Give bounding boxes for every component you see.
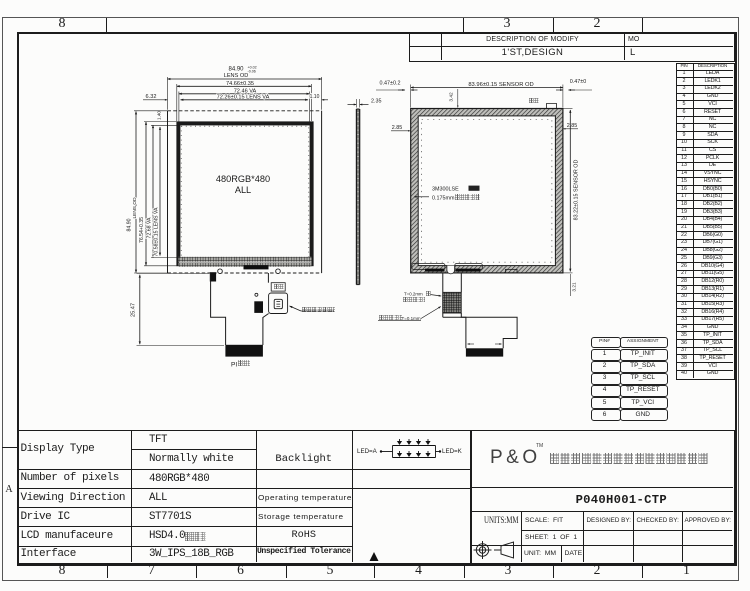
svg-text:83.22±0.15 SENSOR OD: 83.22±0.15 SENSOR OD [574,160,580,221]
svg-text:3M300LSE: 3M300LSE [432,186,459,192]
svg-text:84.90: 84.90 [127,218,133,231]
svg-text:ALL: ALL [235,185,251,195]
svg-text:3.21: 3.21 [572,282,578,292]
svg-text:84.90: 84.90 [228,66,244,72]
svg-text:LENS OD: LENS OD [224,73,249,79]
svg-text:1.40: 1.40 [157,111,162,120]
svg-text:0.175mm: 0.175mm [432,195,455,201]
svg-text:2.85: 2.85 [392,125,403,131]
svg-text:72.26±0.15 LENS VA: 72.26±0.15 LENS VA [217,94,270,100]
svg-text:74.66±0.35: 74.66±0.35 [226,81,254,87]
svg-text:72.68 VA: 72.68 VA [147,217,153,238]
svg-text:76.54+0.35: 76.54+0.35 [139,217,145,243]
svg-text:6.32: 6.32 [146,94,157,100]
svg-text:LENS OD: LENS OD [132,197,138,219]
svg-text:2.35: 2.35 [371,98,382,104]
svg-text:83.96±0.15 SENSOR OD: 83.96±0.15 SENSOR OD [468,82,533,88]
svg-text:3.42: 3.42 [448,92,454,102]
svg-text:1.10: 1.10 [310,94,320,100]
svg-text:25.47: 25.47 [131,303,137,317]
svg-text:70.58±0.15 LENS VA: 70.58±0.15 LENS VA [154,207,160,256]
svg-text:-0.06: -0.06 [248,69,256,73]
svg-text:0.47±0: 0.47±0 [570,79,586,85]
svg-text:72.46 VA: 72.46 VA [234,88,257,94]
svg-text:2.85: 2.85 [567,123,578,129]
svg-text:480RGB*480: 480RGB*480 [216,174,270,184]
svg-text:0.47±0.2: 0.47±0.2 [380,81,401,87]
